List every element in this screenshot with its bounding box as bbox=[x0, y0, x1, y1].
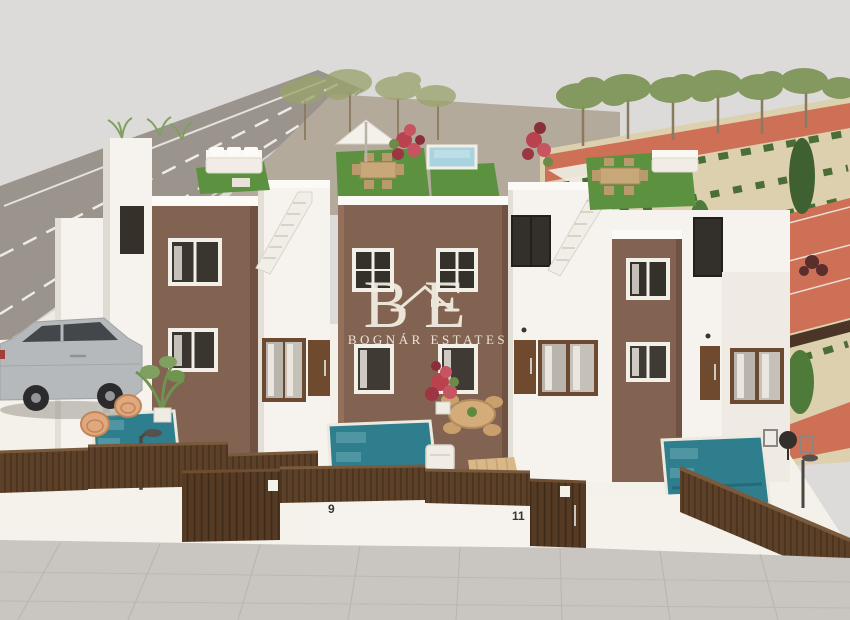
tower-window bbox=[120, 206, 144, 254]
front-door-left bbox=[308, 340, 330, 396]
roof-terrace-right bbox=[586, 150, 698, 210]
recessed-section bbox=[508, 182, 612, 482]
window-upper-right bbox=[626, 258, 670, 300]
front-door-right bbox=[700, 346, 720, 400]
entry-left bbox=[262, 338, 330, 402]
intercom-plaque-left bbox=[268, 480, 278, 491]
garage-gate-left bbox=[182, 470, 280, 542]
lounge-chair bbox=[426, 445, 454, 471]
roof-sofa-right bbox=[652, 150, 698, 172]
house-number-left: 9 bbox=[328, 502, 335, 516]
intercom-plaque-center bbox=[560, 486, 570, 497]
watermark-monogram-b: B bbox=[364, 266, 409, 342]
tall-window-right bbox=[694, 218, 722, 276]
front-door-center bbox=[514, 340, 536, 394]
watermark-name: BOGNÁR ESTATES bbox=[348, 332, 508, 347]
window-upper-left bbox=[168, 238, 222, 286]
architectural-render: 9 11 B E BOGNÁR ESTATES bbox=[0, 0, 850, 620]
window-lower-right bbox=[626, 342, 670, 382]
window-lower-left bbox=[168, 328, 218, 372]
pedestrian-gate-center bbox=[530, 480, 586, 548]
house-number-right: 11 bbox=[512, 509, 525, 523]
roof-terrace-left bbox=[196, 147, 270, 194]
window-lower-1 bbox=[354, 344, 394, 394]
front-wall-right bbox=[585, 494, 680, 554]
